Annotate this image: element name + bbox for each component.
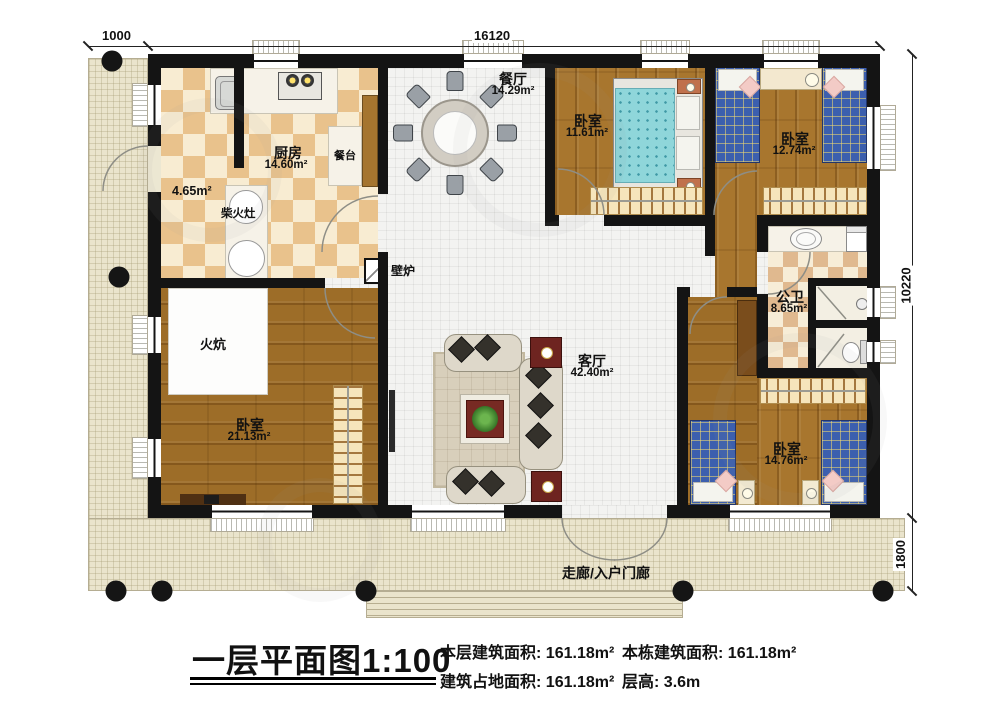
dimension-total-depth: 10220: [899, 265, 914, 305]
label-kang: 火炕: [200, 334, 226, 353]
porch-column: [152, 581, 173, 602]
stat-label: 本栋建筑面积:: [622, 645, 723, 662]
stat-label: 层高:: [622, 674, 659, 691]
label-porch: 走廊/入户门廊: [562, 563, 650, 583]
stat-floor-height: 层高: 3.6m: [622, 668, 700, 692]
stat-footprint-area: 建筑占地面积: 161.18m²: [440, 668, 614, 692]
title-underline: [190, 677, 436, 680]
plan-scale: 1:100: [362, 642, 451, 679]
room-area-bathroom: 8.65m²: [771, 303, 807, 315]
porch-column: [106, 581, 127, 602]
room-area-dining: 14.29m²: [492, 85, 535, 97]
room-area-bedroom-top-right: 12.74m²: [773, 145, 816, 157]
door-arcs: [0, 0, 1000, 706]
stat-value: 161.18m²: [546, 674, 615, 691]
porch-column: [102, 51, 123, 72]
room-area-pantry: 4.65m²: [172, 184, 212, 198]
porch-column: [356, 581, 377, 602]
floor-plan: 厨房 14.60m² 4.65m² 柴火灶 餐台 餐厅 14.29m² 卧室 1…: [0, 0, 1000, 706]
dimension-total-width: 16120: [472, 28, 512, 43]
dimension-line: [912, 518, 913, 591]
title-block: 一层平面图1:100: [192, 634, 451, 682]
porch-column: [873, 581, 894, 602]
stat-value: 161.18m²: [546, 645, 615, 662]
dimension-line: [148, 46, 880, 47]
plan-title: 一层平面图: [192, 642, 362, 679]
dimension-left-width: 1000: [100, 28, 133, 43]
label-fireplace: 壁炉: [391, 262, 415, 279]
title-underline: [190, 683, 436, 685]
label-serving-counter: 餐台: [334, 147, 356, 163]
room-area-bedroom-bottom-right: 14.76m²: [765, 455, 808, 467]
room-area-living: 42.40m²: [571, 367, 614, 379]
dimension-porch-depth: 1800: [893, 538, 908, 571]
stat-value: 3.6m: [664, 674, 700, 691]
label-wood-stove: 柴火灶: [221, 205, 256, 221]
room-area-bedroom-top-mid: 11.61m²: [566, 127, 608, 139]
porch-column: [673, 581, 694, 602]
stat-label: 本层建筑面积:: [440, 645, 541, 662]
stat-label: 建筑占地面积:: [440, 674, 541, 691]
dimension-line: [88, 46, 148, 47]
watermark: [145, 70, 880, 595]
room-area-bedroom-left: 21.13m²: [228, 431, 271, 443]
stat-building-area: 本栋建筑面积: 161.18m²: [622, 639, 796, 663]
porch-column: [109, 267, 130, 288]
room-area-kitchen: 14.60m²: [265, 159, 308, 171]
stat-floor-area: 本层建筑面积: 161.18m²: [440, 639, 614, 663]
stat-value: 161.18m²: [728, 645, 797, 662]
